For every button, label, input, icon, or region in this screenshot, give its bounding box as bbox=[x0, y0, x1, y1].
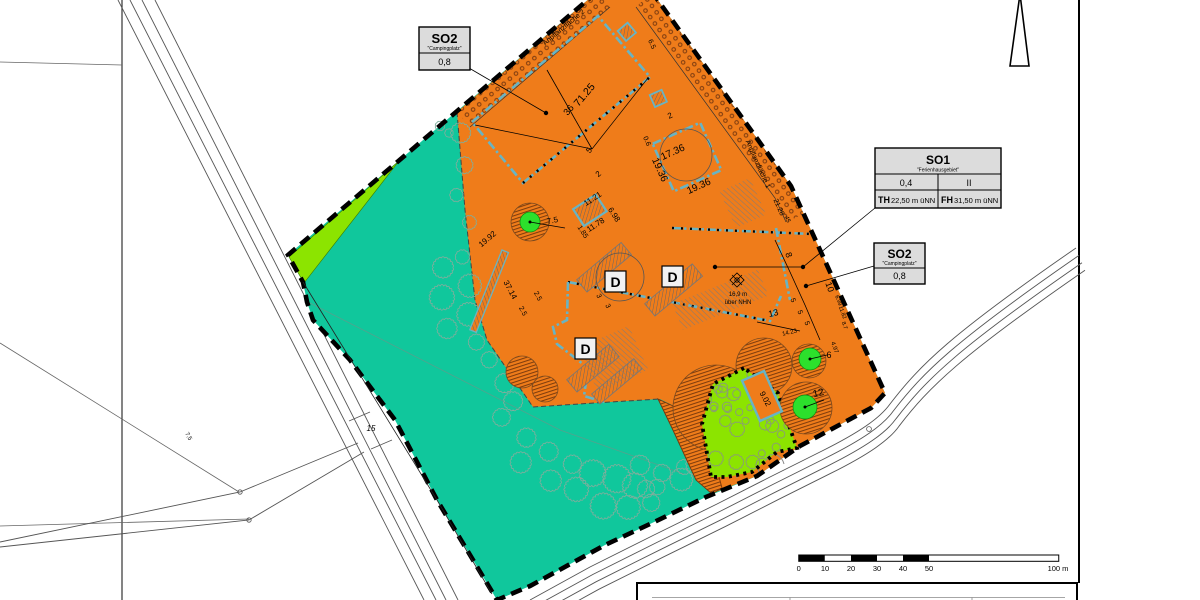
svg-text:0,4: 0,4 bbox=[900, 178, 913, 188]
svg-text:0,8: 0,8 bbox=[438, 57, 451, 67]
svg-text:22,50 m üNN: 22,50 m üNN bbox=[891, 196, 935, 205]
svg-text:D: D bbox=[580, 341, 590, 357]
svg-text:50: 50 bbox=[925, 564, 933, 573]
svg-text:100 m: 100 m bbox=[1048, 564, 1069, 573]
svg-text:"Ferienhausgebiet": "Ferienhausgebiet" bbox=[917, 168, 959, 174]
svg-text:D: D bbox=[667, 269, 677, 285]
svg-text:über NHN: über NHN bbox=[725, 300, 752, 306]
svg-text:0: 0 bbox=[797, 564, 801, 573]
svg-text:31,50 m üNN: 31,50 m üNN bbox=[954, 196, 998, 205]
svg-text:0,8: 0,8 bbox=[893, 271, 906, 281]
svg-text:SO2: SO2 bbox=[887, 247, 911, 261]
svg-text:II: II bbox=[966, 178, 971, 188]
svg-text:D: D bbox=[610, 274, 620, 290]
svg-text:FH: FH bbox=[941, 195, 953, 205]
svg-text:30: 30 bbox=[873, 564, 881, 573]
svg-text:40: 40 bbox=[899, 564, 907, 573]
svg-text:SO1: SO1 bbox=[926, 153, 950, 167]
svg-text:16,9 m: 16,9 m bbox=[729, 292, 747, 298]
svg-text:TH: TH bbox=[878, 195, 890, 205]
svg-text:"Campingplatz": "Campingplatz" bbox=[427, 46, 461, 52]
svg-text:20: 20 bbox=[847, 564, 855, 573]
svg-text:10: 10 bbox=[821, 564, 829, 573]
svg-text:SO2: SO2 bbox=[431, 31, 457, 46]
svg-text:6: 6 bbox=[826, 350, 831, 360]
svg-text:"Campingplatz": "Campingplatz" bbox=[882, 261, 916, 267]
svg-text:15: 15 bbox=[367, 424, 376, 433]
